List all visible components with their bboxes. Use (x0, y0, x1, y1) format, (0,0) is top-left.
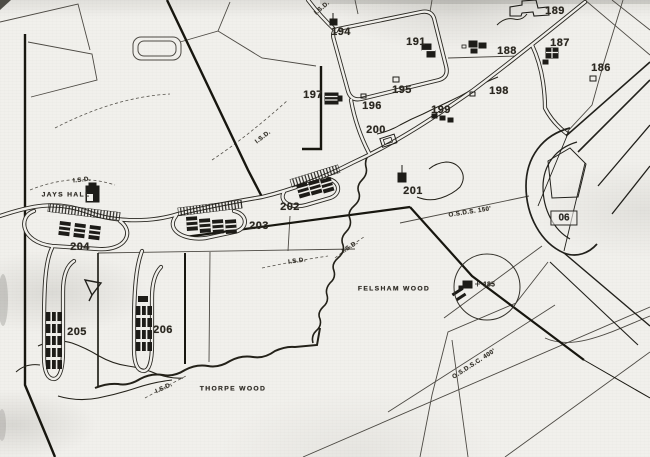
building-jays-hall (86, 183, 99, 202)
building-195 (393, 77, 399, 82)
pond-enclosure (133, 37, 181, 60)
building-187 (543, 48, 558, 64)
building-194 (330, 13, 337, 25)
site-boundary (25, 0, 650, 457)
building-188 (462, 41, 486, 53)
building-186 (590, 76, 596, 81)
turning-pad (548, 148, 586, 198)
tree-blob-201 (417, 162, 463, 200)
thorpe-wood-edge (95, 328, 320, 388)
woods (16, 14, 527, 400)
building-197 (325, 93, 342, 104)
wood-band-3 (16, 365, 40, 372)
map-linework (0, 0, 650, 457)
building-199 (432, 114, 453, 122)
building-201 (398, 165, 406, 182)
map-paper: 1891871881861911941971951961981992002012… (0, 0, 650, 457)
building-191 (422, 44, 435, 57)
dispersal-site-map: 1891871881861911941971951961981992002012… (0, 0, 650, 457)
building-185 (452, 281, 480, 301)
